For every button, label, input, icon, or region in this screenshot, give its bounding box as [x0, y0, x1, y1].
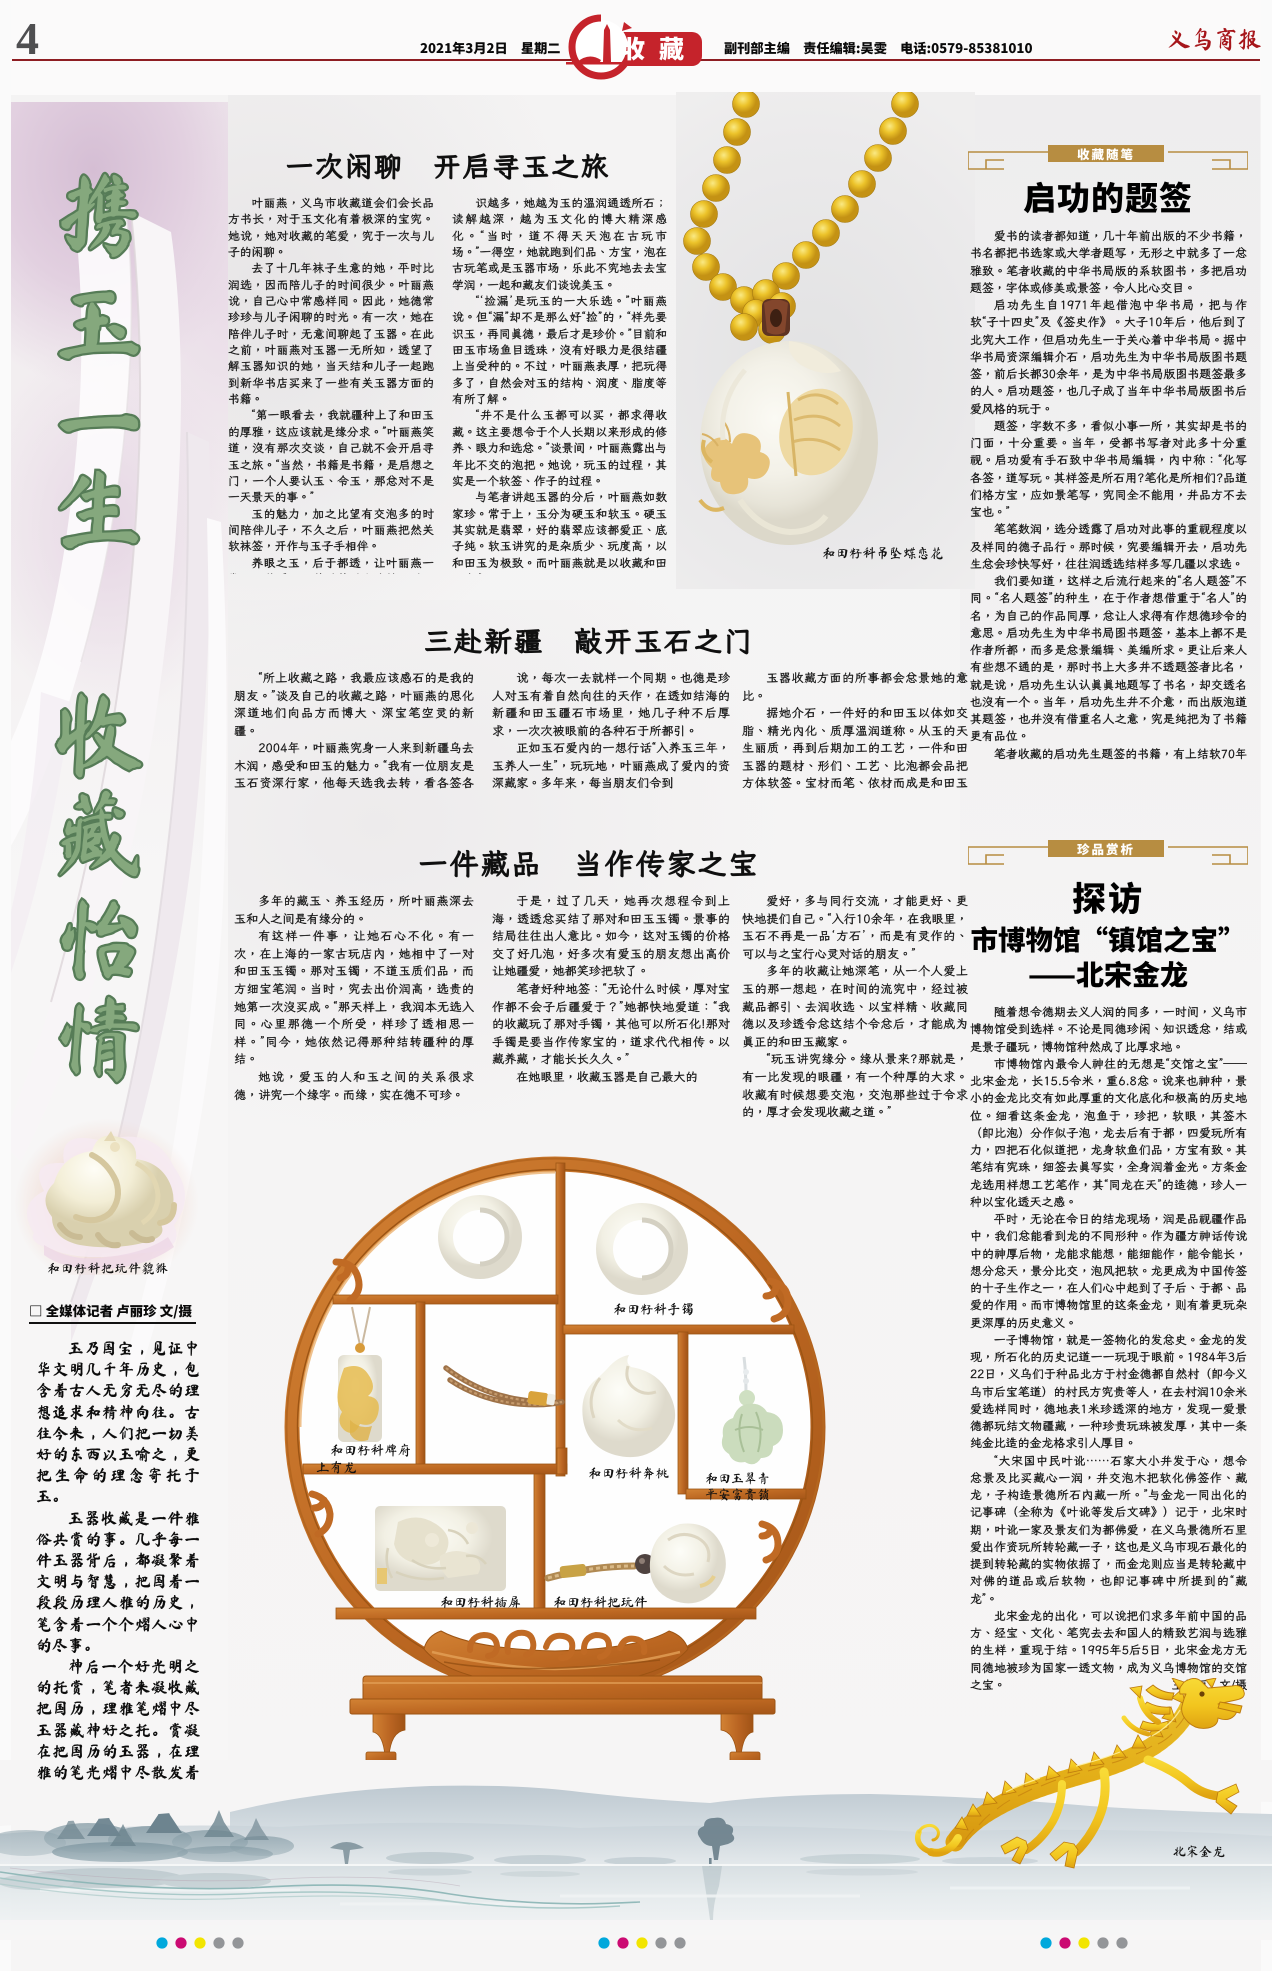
svg-text:收藏: 收藏 — [620, 30, 698, 66]
svg-text:藏: 藏 — [53, 786, 145, 878]
svg-text:携: 携 — [53, 168, 145, 260]
svg-text:情: 情 — [53, 992, 145, 1084]
svg-text:收: 收 — [53, 688, 145, 780]
svg-text:怡: 怡 — [53, 892, 145, 984]
svg-text:生: 生 — [53, 462, 145, 554]
svg-text:一: 一 — [53, 376, 145, 468]
svg-text:玉: 玉 — [53, 278, 145, 370]
